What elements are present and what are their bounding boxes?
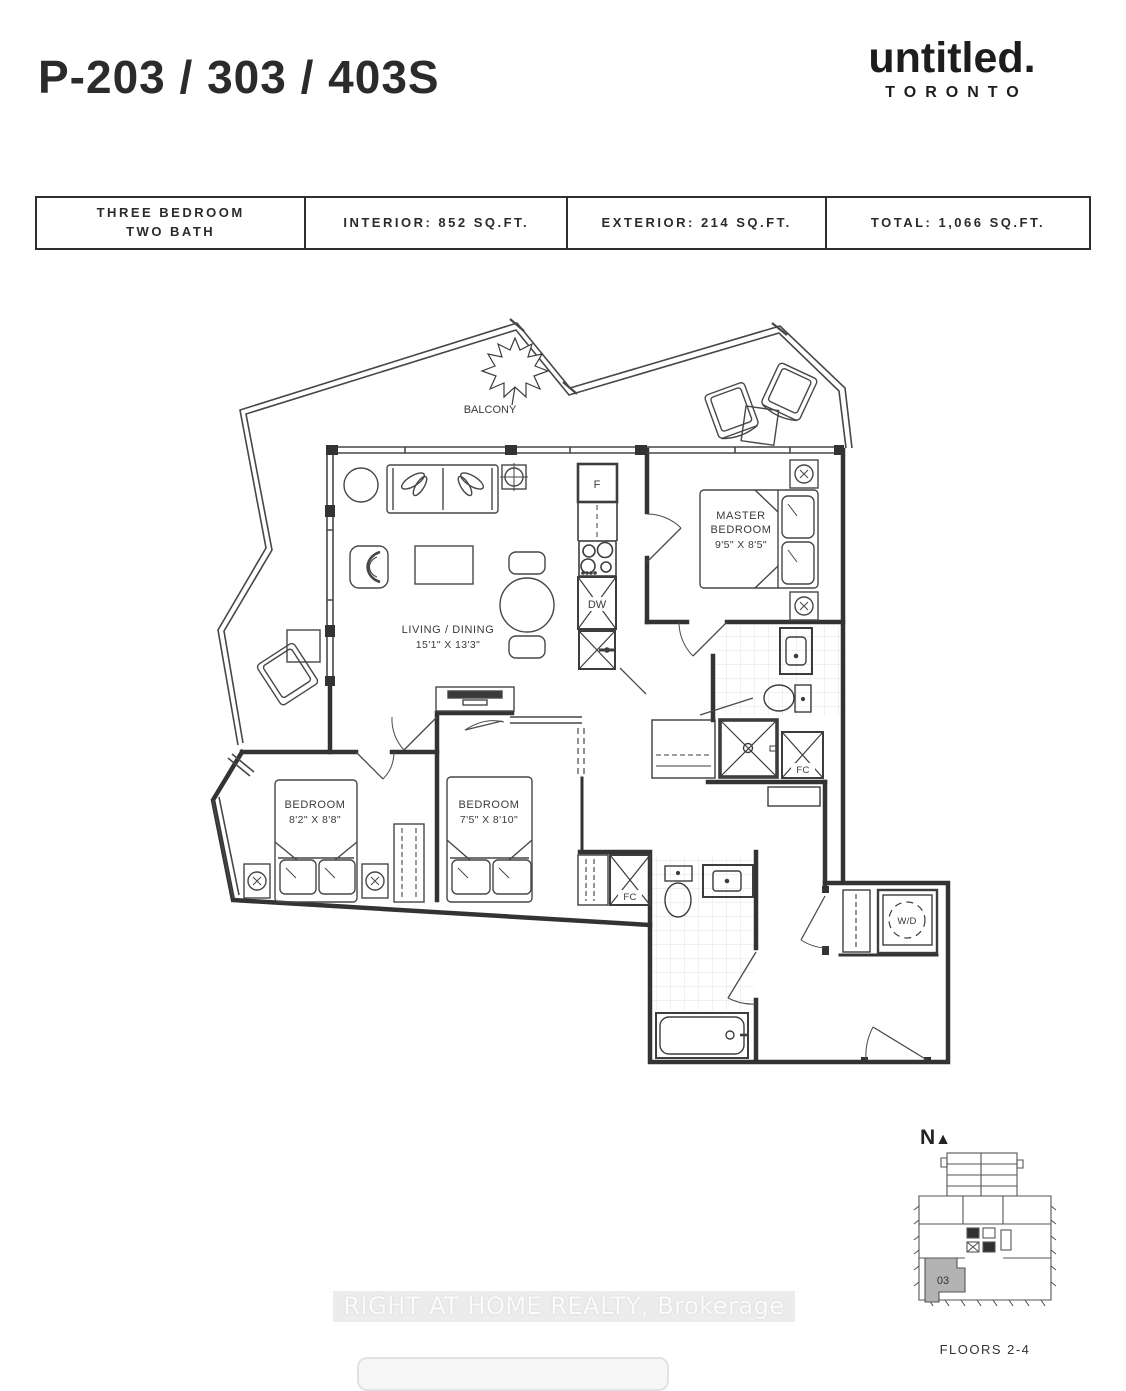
summary-total: TOTAL: 1,066 SQ.FT. xyxy=(827,198,1089,248)
cooktop-icon xyxy=(579,541,616,576)
kitchen-sink-icon xyxy=(579,631,615,669)
north-letter: N xyxy=(920,1126,935,1149)
page-title: P-203 / 303 / 403S xyxy=(38,50,440,104)
bedroom3-dims: 7'5" X 8'10" xyxy=(460,814,518,826)
floor-plan-drawing: BALCONY LIVING / DINING 15'1" X 13'3" MA… xyxy=(180,300,980,1100)
laundry-foyer xyxy=(843,890,937,953)
kitchen xyxy=(578,464,617,669)
summary-exterior: EXTERIOR: 214 SQ.FT. xyxy=(568,198,827,248)
summary-interior-value: INTERIOR: 852 SQ.FT. xyxy=(343,214,529,233)
hall-partition xyxy=(510,717,582,723)
unit-summary-table: THREE BEDROOM TWO BATH INTERIOR: 852 SQ.… xyxy=(35,196,1091,250)
north-indicator: N▲ xyxy=(920,1126,951,1150)
dishwasher-label: DW xyxy=(588,599,607,611)
side-table-icon xyxy=(741,406,779,445)
bed-icon xyxy=(447,777,532,902)
living-label: LIVING / DINING xyxy=(402,624,495,636)
nightstand-icon xyxy=(244,864,270,898)
living-dims: 15'1" X 13'3" xyxy=(416,639,481,651)
watermark-band: RIGHT AT HOME REALTY, Brokerage xyxy=(333,1291,795,1322)
nightstand-icon xyxy=(790,460,818,488)
watermark-text: RIGHT AT HOME REALTY, Brokerage xyxy=(343,1292,784,1320)
armchair-icon xyxy=(350,546,388,588)
summary-bath-line: TWO BATH xyxy=(126,223,215,242)
summary-interior: INTERIOR: 852 SQ.FT. xyxy=(306,198,568,248)
floorplan-page: { "header": { "title": "P-203 / 303 / 40… xyxy=(0,0,1126,1374)
brand-logo-city: TORONTO xyxy=(840,84,1064,102)
sliding-door xyxy=(578,728,584,778)
bedroom2-label: BEDROOM xyxy=(284,799,345,811)
fan-coil-label: FC xyxy=(623,892,636,903)
unit-number-label: 03 xyxy=(937,1275,949,1287)
bulkhead xyxy=(768,787,820,806)
summary-bed-line: THREE BEDROOM xyxy=(97,204,245,223)
washer-dryer-label: W/D xyxy=(897,916,916,927)
north-arrow-icon: ▲ xyxy=(935,1131,951,1148)
master-dims: 9'5" X 8'5" xyxy=(715,539,767,551)
ceiling-light-icon xyxy=(500,463,528,491)
dining-set-icon xyxy=(500,552,554,658)
closet xyxy=(394,824,424,902)
coffee-table-icon xyxy=(415,546,473,584)
plant-icon xyxy=(344,468,378,502)
bathtub-icon xyxy=(656,1013,748,1058)
living-furniture xyxy=(344,463,554,711)
summary-exterior-value: EXTERIOR: 214 SQ.FT. xyxy=(602,214,792,233)
tv-console-icon xyxy=(436,687,514,711)
closet xyxy=(843,890,870,952)
lounge-chair-icon xyxy=(759,362,818,425)
cropped-bottom-button[interactable] xyxy=(357,1357,669,1391)
sofa-icon xyxy=(387,465,498,513)
fan-coil-label: FC xyxy=(796,765,809,776)
fridge-label: F xyxy=(594,479,601,491)
bedroom2-dims: 8'2" X 8'8" xyxy=(289,814,341,826)
brand-logo: untitled. TORONTO xyxy=(840,36,1064,102)
closet xyxy=(578,855,608,905)
balcony-label: BALCONY xyxy=(464,404,517,416)
key-plan: 03 xyxy=(905,1150,1065,1335)
shower-icon xyxy=(720,720,777,777)
brand-logo-name: untitled. xyxy=(840,36,1064,81)
bedroom3-label: BEDROOM xyxy=(458,799,519,811)
master-label-1: MASTER xyxy=(716,510,765,522)
summary-total-value: TOTAL: 1,066 SQ.FT. xyxy=(871,214,1045,233)
linen-closet xyxy=(652,720,715,778)
lounge-chair-icon xyxy=(704,382,760,443)
master-label-2: BEDROOM xyxy=(710,524,771,536)
summary-bed-bath: THREE BEDROOM TWO BATH xyxy=(37,198,306,248)
keyplan-caption: FLOORS 2-4 xyxy=(897,1342,1073,1357)
tiled-floors xyxy=(652,626,841,1010)
window-piers xyxy=(325,445,931,1064)
nightstand-icon xyxy=(362,864,388,898)
nightstand-icon xyxy=(790,592,818,620)
